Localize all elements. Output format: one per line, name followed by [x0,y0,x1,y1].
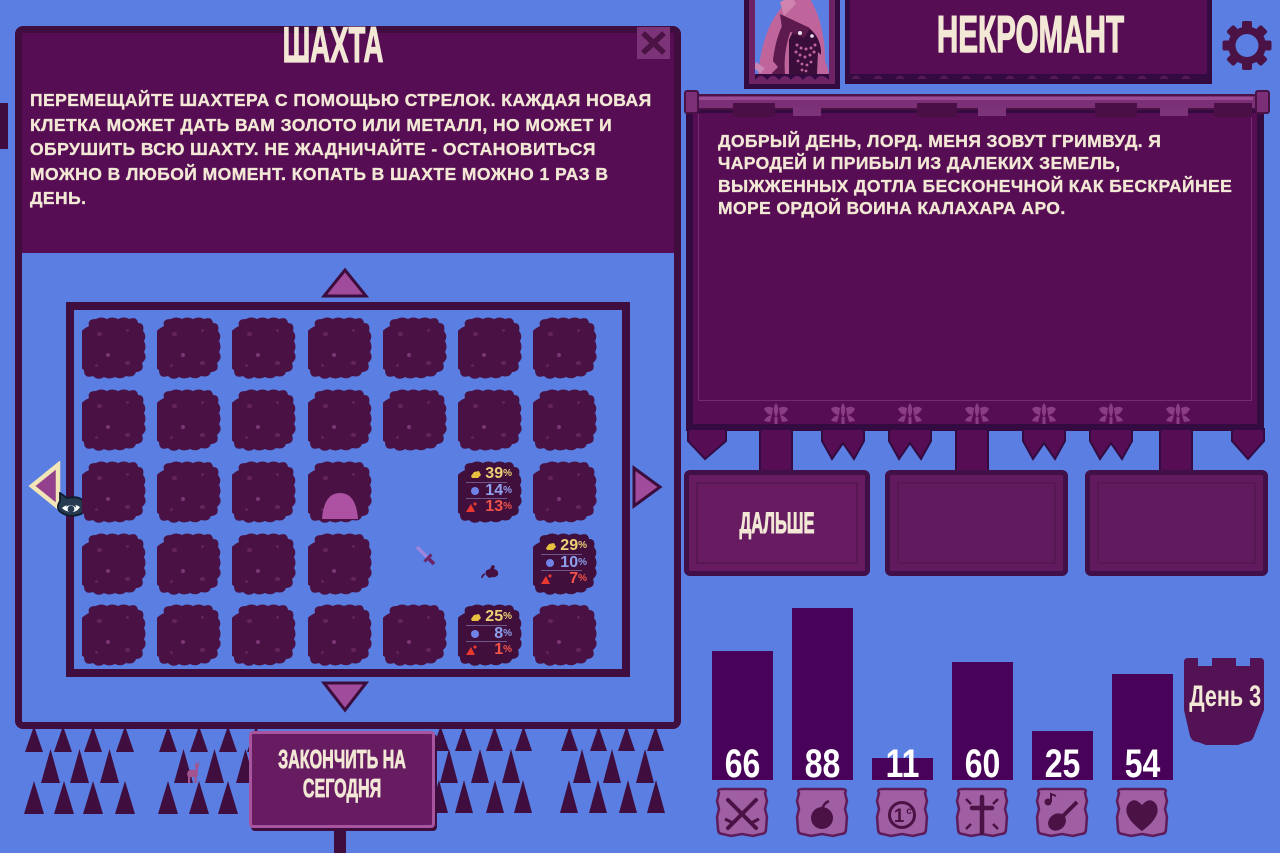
svg-text:День 3: День 3 [1189,678,1261,712]
svg-text:1: 1 [894,806,905,827]
svg-text:c: c [906,806,912,817]
